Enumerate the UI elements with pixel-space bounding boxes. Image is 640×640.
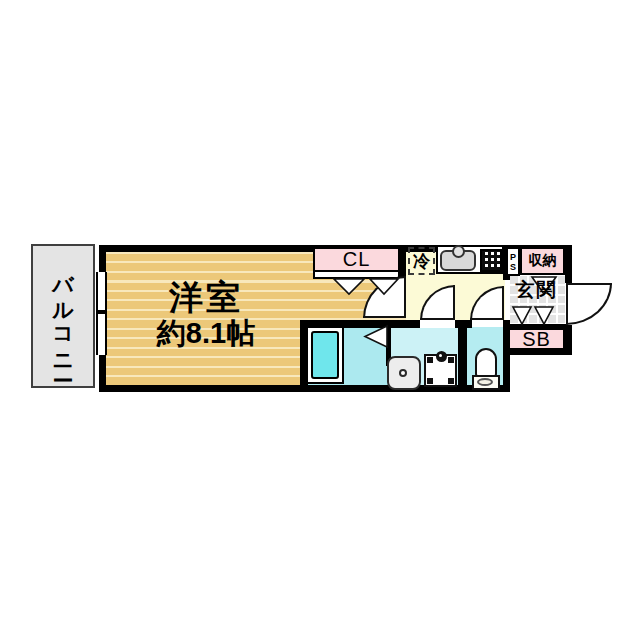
closet-door-track	[313, 270, 400, 279]
kitchen-faucet-icon	[452, 245, 465, 258]
storage-label: 収納	[529, 252, 557, 270]
wall-washroom-toilet	[458, 320, 467, 392]
entrance-door-swing	[566, 283, 612, 325]
bathtub-icon	[311, 331, 339, 379]
western-room-label: 洋室 約8.1帖	[106, 278, 306, 354]
washer-faucet-icon	[436, 351, 447, 362]
shoebox-label: SB	[522, 328, 551, 351]
stove-icon	[480, 249, 502, 272]
shoebox-box: SB	[508, 328, 565, 350]
closet-label: CL	[343, 248, 371, 271]
pipe-space-label-p: P	[510, 252, 516, 262]
toilet-tank-basin	[477, 378, 493, 386]
refrigerator-space: 冷	[408, 247, 435, 275]
washbasin-drain	[399, 369, 407, 377]
storage-box: 収納	[520, 247, 565, 275]
closet-box: CL	[313, 247, 400, 272]
wall-right-upper	[565, 252, 572, 283]
balcony-label: バルコニー	[31, 244, 95, 388]
room-size: 約8.1帖	[106, 316, 306, 350]
entrance-label: 玄関	[508, 278, 565, 302]
pipe-space-box: P S	[506, 247, 520, 276]
toilet-icon	[475, 348, 497, 378]
wall-left-upper	[99, 252, 106, 272]
refrigerator-label: 冷	[413, 250, 430, 273]
floor-plan: バルコニー CL P S 収納 SB 玄関	[0, 0, 640, 640]
pipe-space-label-s: S	[510, 262, 516, 272]
room-name: 洋室	[106, 278, 306, 316]
